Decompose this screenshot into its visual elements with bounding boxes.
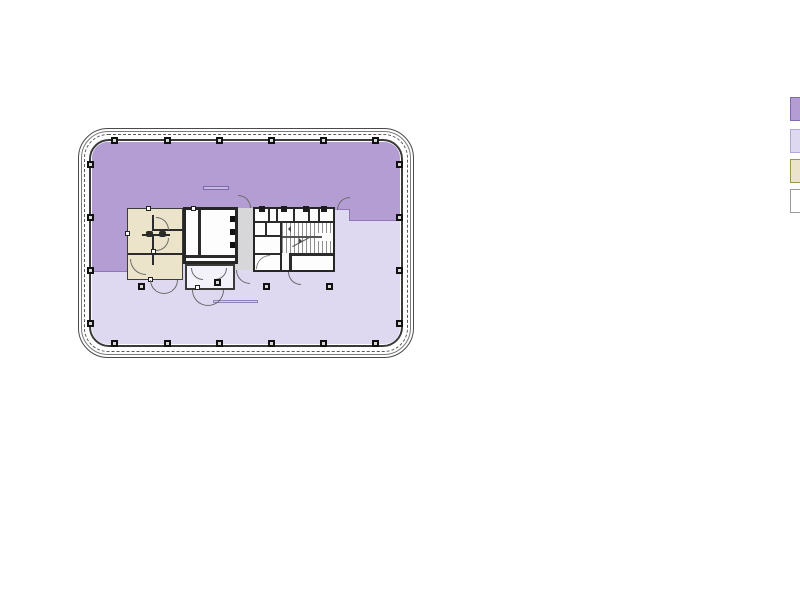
- door-jamb: [151, 249, 156, 254]
- column-marker: [87, 267, 94, 274]
- column-marker: [372, 340, 379, 347]
- column-marker: [214, 279, 221, 286]
- wall-segment: [152, 215, 154, 229]
- wall-segment: [152, 235, 154, 249]
- door-arc: [130, 259, 146, 275]
- wall-anchor: [303, 206, 309, 212]
- column-marker: [268, 340, 275, 347]
- toilet-fixture: [146, 231, 153, 237]
- door-arc: [156, 238, 169, 251]
- door-arc: [192, 290, 208, 306]
- wall-segment: [255, 235, 280, 237]
- column-marker: [164, 340, 171, 347]
- legend-swatch-restrooms: [790, 159, 800, 183]
- zone-boundary: [350, 220, 400, 221]
- legend-swatch-lower-tenant: [790, 129, 800, 153]
- core-vestibule: [185, 264, 235, 290]
- column-marker: [111, 340, 118, 347]
- column-marker: [320, 340, 327, 347]
- floor-slab: [92, 142, 400, 344]
- column-marker: [396, 267, 403, 274]
- floor-plan: [78, 128, 414, 358]
- stair-direction-arrow: [285, 226, 291, 232]
- column-marker: [372, 137, 379, 144]
- column-marker: [263, 283, 270, 290]
- wall-segment: [293, 209, 295, 221]
- stair-direction-arrow: [299, 238, 305, 244]
- door-jamb: [191, 206, 196, 211]
- wall-segment: [276, 209, 278, 221]
- elevator-door-marker: [230, 242, 235, 248]
- legend-swatch-shafts: [790, 189, 800, 213]
- column-marker: [87, 161, 94, 168]
- wall-segment: [265, 221, 267, 235]
- door-jamb: [125, 231, 130, 236]
- column-marker: [138, 283, 145, 290]
- wall-anchor: [281, 206, 287, 212]
- column-marker: [326, 283, 333, 290]
- toilet-fixture: [159, 231, 166, 237]
- door-arc: [256, 255, 270, 269]
- shaft-divider-wall: [198, 210, 201, 255]
- wall-segment: [289, 253, 333, 256]
- column-marker: [87, 214, 94, 221]
- wall-segment: [268, 209, 270, 221]
- column-marker: [111, 137, 118, 144]
- wall-anchor: [321, 206, 327, 212]
- legend-swatch-upper-tenant: [790, 97, 800, 121]
- wall-segment: [186, 255, 235, 258]
- elevator-bank: [183, 207, 238, 264]
- elevator-door-marker: [230, 216, 235, 222]
- column-marker: [216, 340, 223, 347]
- stair-core: [253, 207, 335, 272]
- column-marker: [216, 137, 223, 144]
- door-arc: [164, 280, 178, 294]
- column-marker: [164, 137, 171, 144]
- column-marker: [396, 214, 403, 221]
- door-arc: [191, 268, 203, 280]
- column-marker: [396, 161, 403, 168]
- wall-segment: [128, 253, 184, 255]
- door-arc: [236, 270, 250, 284]
- opening-marker-top: [203, 186, 229, 190]
- column-marker: [320, 137, 327, 144]
- door-arc: [156, 217, 169, 230]
- wall-segment: [318, 209, 320, 221]
- door-arc: [208, 290, 224, 306]
- door-arc: [150, 280, 164, 294]
- column-marker: [268, 137, 275, 144]
- door-arc: [288, 272, 301, 285]
- elevator-door-marker: [230, 229, 235, 235]
- door-jamb: [146, 206, 151, 211]
- core-restrooms: [127, 208, 183, 280]
- wall-segment: [289, 253, 292, 270]
- wall-anchor: [259, 206, 265, 212]
- column-marker: [396, 320, 403, 327]
- zone-boundary: [92, 271, 128, 272]
- canvas: { "canvas": { "background": "#ffffff" },…: [0, 0, 800, 600]
- column-marker: [87, 320, 94, 327]
